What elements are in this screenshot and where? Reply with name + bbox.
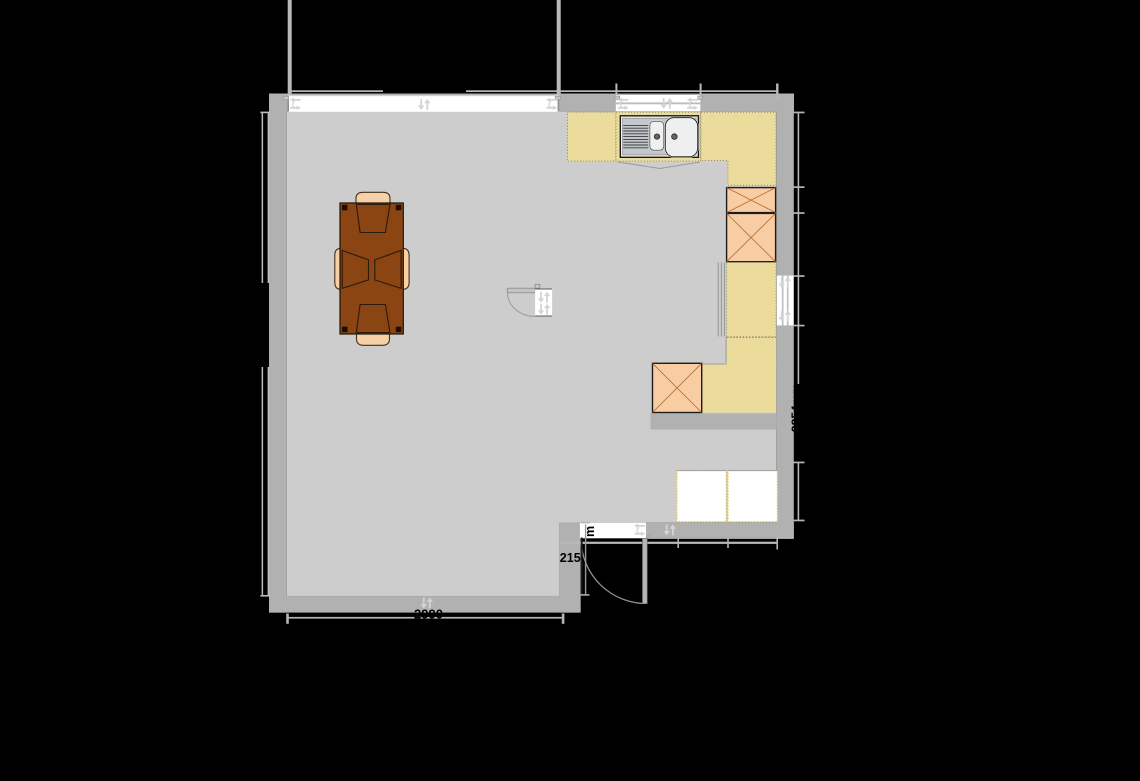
svg-text:2990: 2990 [414, 606, 443, 621]
svg-text:m: m [583, 526, 597, 537]
svg-text:9854mm: 9854mm [789, 384, 803, 432]
svg-text:215: 215 [560, 551, 581, 565]
